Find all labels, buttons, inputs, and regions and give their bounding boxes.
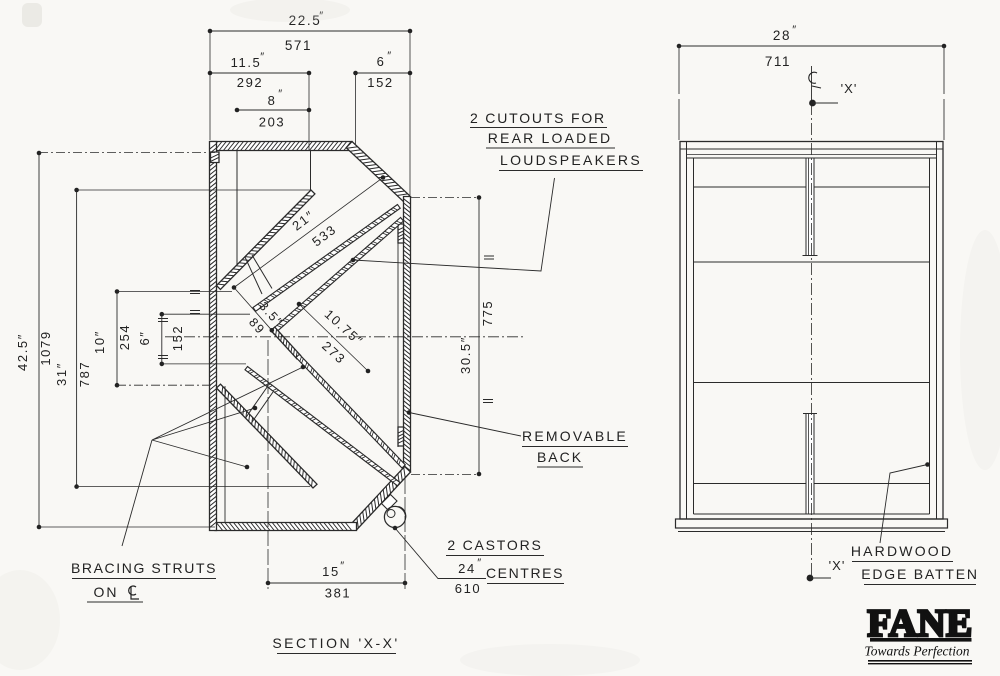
svg-text:″: ″ [278, 88, 284, 100]
svg-text:775: 775 [480, 300, 495, 327]
svg-text:CENTRES: CENTRES [486, 565, 564, 581]
svg-text:28: 28 [773, 28, 791, 43]
svg-text:11.5: 11.5 [231, 55, 262, 70]
svg-text:ON: ON [94, 584, 119, 600]
svg-text:152: 152 [170, 325, 185, 352]
svg-text:711: 711 [765, 54, 791, 69]
svg-text:1079: 1079 [38, 330, 53, 365]
svg-text:HARDWOOD: HARDWOOD [851, 543, 953, 559]
svg-text:30.5″: 30.5″ [458, 336, 473, 374]
svg-text:273: 273 [319, 338, 349, 367]
svg-text:'X': 'X' [841, 81, 858, 96]
svg-text:254: 254 [117, 324, 132, 351]
svg-text:152: 152 [367, 75, 394, 90]
svg-text:2 CUTOUTS FOR: 2 CUTOUTS FOR [470, 110, 606, 126]
svg-text:″: ″ [792, 24, 798, 36]
svg-text:EDGE BATTEN: EDGE BATTEN [861, 566, 979, 582]
svg-text:571: 571 [285, 38, 312, 53]
svg-text:″: ″ [387, 50, 393, 62]
svg-text:24: 24 [458, 561, 476, 576]
svg-text:REMOVABLE: REMOVABLE [522, 428, 628, 444]
svg-text:610: 610 [455, 581, 482, 596]
svg-text:6″: 6″ [137, 330, 152, 345]
svg-text:6: 6 [377, 54, 386, 69]
svg-text:BACK: BACK [537, 449, 583, 465]
svg-text:BRACING STRUTS: BRACING STRUTS [71, 560, 217, 576]
svg-text:10″: 10″ [92, 330, 107, 354]
svg-text:2 CASTORS: 2 CASTORS [447, 537, 542, 553]
svg-text:89: 89 [246, 315, 268, 337]
svg-text:533: 533 [309, 221, 339, 249]
svg-text:″: ″ [260, 51, 266, 63]
svg-text:15: 15 [322, 564, 340, 579]
svg-text:31″: 31″ [54, 362, 69, 386]
svg-text:203: 203 [259, 115, 286, 130]
svg-text:'X': 'X' [829, 558, 846, 573]
svg-text:LOUDSPEAKERS: LOUDSPEAKERS [500, 152, 642, 168]
svg-text:″: ″ [340, 560, 346, 572]
svg-text:381: 381 [325, 586, 352, 601]
svg-text:″: ″ [477, 557, 483, 569]
svg-text:REAR LOADED: REAR LOADED [488, 130, 613, 146]
svg-text:8: 8 [268, 93, 277, 108]
svg-text:292: 292 [237, 75, 264, 90]
svg-text:787: 787 [77, 361, 92, 388]
svg-text:SECTION 'X-X': SECTION 'X-X' [272, 635, 399, 651]
svg-text:42.5″: 42.5″ [15, 333, 30, 371]
svg-text:Towards Perfection: Towards Perfection [864, 644, 969, 659]
